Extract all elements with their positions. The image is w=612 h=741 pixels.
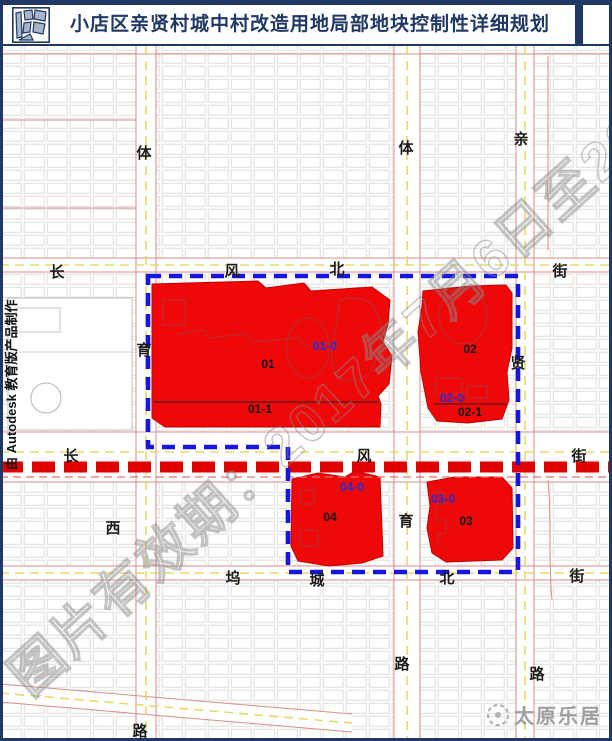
street-label: 北 (439, 570, 454, 587)
street-label: 西 (105, 520, 120, 537)
street-label: 路 (394, 655, 410, 673)
plot-label-02: 02 (463, 342, 477, 356)
plot-04-area (291, 471, 383, 566)
street-label: 育 (136, 341, 151, 359)
street-label: 亲 (513, 130, 528, 148)
plot-label-03: 03 (459, 514, 473, 528)
plot-label-02-1: 02-1 (458, 405, 482, 419)
street-label: 体 (398, 139, 414, 157)
park-block (8, 298, 132, 430)
plan-map: 体 育 西 路 体 育 路 亲 贤 路 长 风 北 街 长 风 街 坞 城 北 (0, 46, 612, 741)
leju-brand-text: 太原乐居 (514, 705, 602, 728)
street-label: 街 (551, 262, 567, 280)
plot-label-01-1: 01-1 (248, 402, 272, 416)
street-label: 贤 (510, 355, 525, 372)
frame-border-top (0, 0, 612, 5)
street-label: 北 (329, 261, 344, 278)
frame-border-left (0, 0, 3, 741)
street-label: 风 (356, 448, 371, 465)
page-title: 小店区亲贤村城中村改造用地局部地块控制性详细规划 (3, 5, 609, 36)
plot-label-04-0: 04-0 (340, 480, 364, 494)
city-blocks-logo-icon (12, 7, 50, 43)
street-label: 风 (224, 263, 239, 280)
street-label: 路 (529, 665, 545, 683)
autodesk-credit: 由 Autodesk 教育版产品制作 (4, 300, 19, 470)
plan-map-canvas: 体 育 西 路 体 育 路 亲 贤 路 长 风 北 街 长 风 街 坞 城 北 (0, 46, 612, 741)
street-label: 街 (570, 447, 586, 465)
street-label: 城 (309, 571, 324, 589)
street-label: 长 (49, 263, 65, 281)
street-label: 长 (63, 447, 79, 465)
street-label: 坞 (225, 569, 240, 587)
plot-label-02-0: 02-0 (440, 391, 464, 405)
plot-label-04: 04 (323, 510, 337, 524)
street-label: 育 (398, 512, 413, 530)
title-bar: 小店区亲贤村城中村改造用地局部地块控制性详细规划 (3, 5, 609, 46)
plot-label-03-0: 03-0 (431, 492, 455, 506)
plot-label-01-0: 01-0 (313, 339, 337, 353)
title-bar-right-rule (575, 5, 583, 44)
street-label: 街 (568, 567, 584, 585)
street-label: 体 (136, 144, 152, 162)
planning-map-page: 小店区亲贤村城中村改造用地局部地块控制性详细规划 (0, 0, 612, 741)
plot-label-01: 01 (261, 357, 275, 371)
